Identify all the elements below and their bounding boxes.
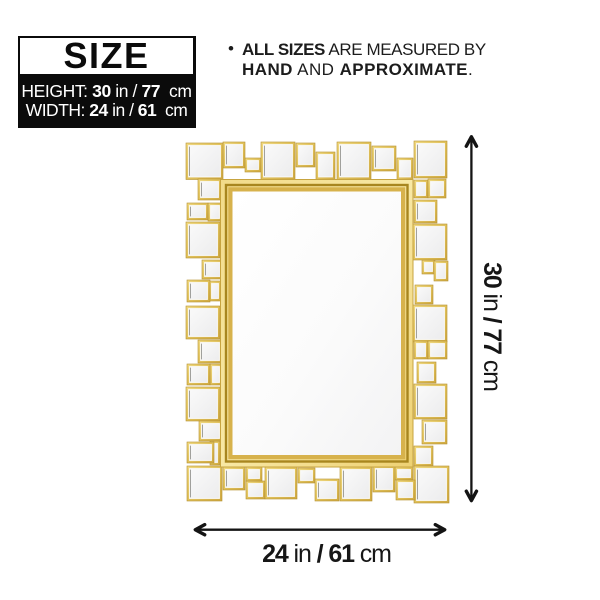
svg-text:30 in / 77 cm: 30 in / 77 cm: [478, 262, 506, 391]
svg-text:24 in / 61 cm: 24 in / 61 cm: [262, 540, 391, 568]
